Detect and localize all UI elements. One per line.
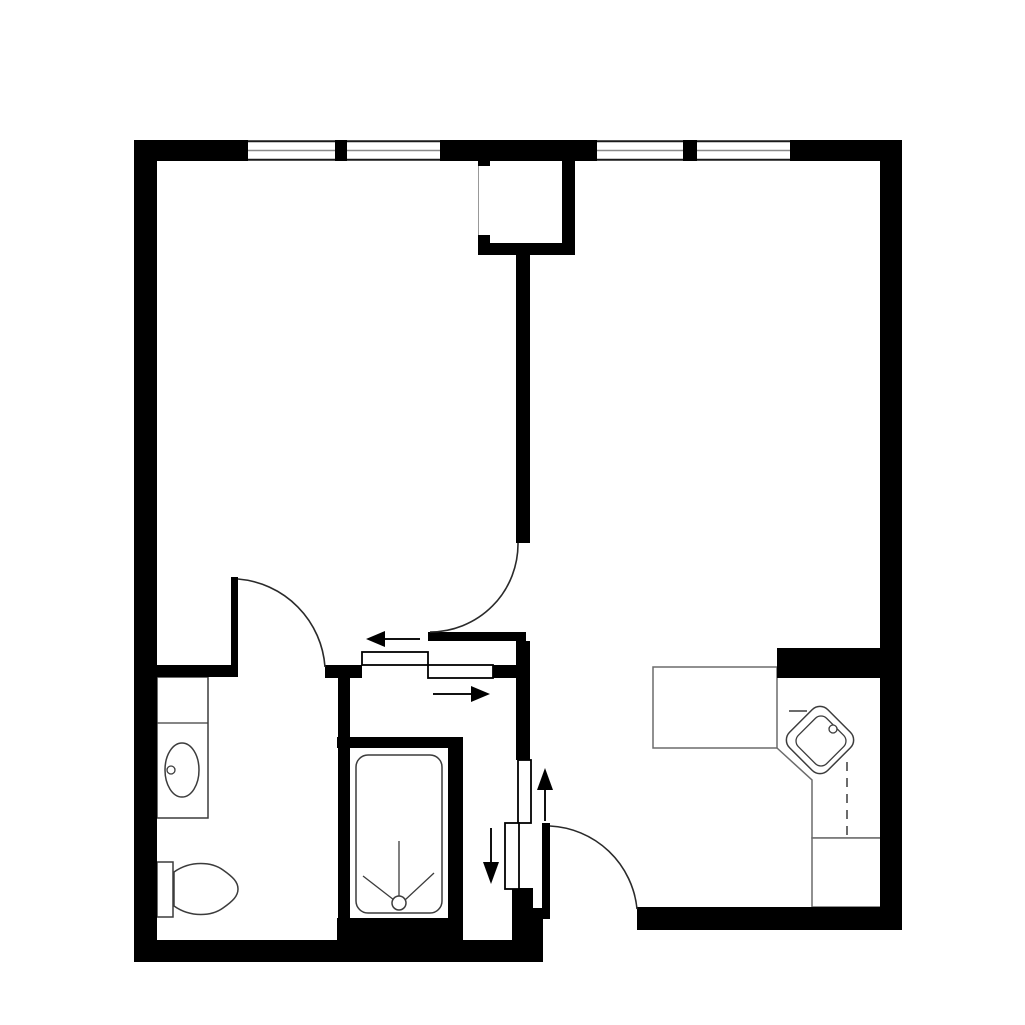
slide-door-right-wall [493,665,516,678]
slide-panel-lower [428,665,493,678]
floorplan-svg [0,0,1025,1025]
left-wall [134,140,157,962]
window-mullion-2 [683,140,697,161]
entry-step-wall-a [512,888,533,910]
window-mullion-1 [335,140,347,161]
kitchen-counter-top [653,667,777,748]
shower-bottom-wall [337,918,463,942]
toilet-bowl [174,864,238,915]
bath-top-wall [134,665,232,677]
top-wall-center [440,140,597,161]
shower-right-wall [448,748,463,923]
kitchen-wall-stub [777,648,882,678]
slide-arrow-left-head [366,631,385,647]
shower-left-wall [338,748,350,940]
entry-door-leaf [542,823,550,919]
slide-panel-vert-right [518,760,531,823]
slide-arrow-right-head [471,686,490,702]
slide-arrow-down-head [483,862,499,884]
room-divider-wall [516,255,530,543]
entry-door-swing-arc [550,826,637,909]
floor-plan-page [0,0,1025,1025]
kitchen-counter-bottom [812,838,882,907]
bottom-wall-right [637,907,902,930]
shower-drain [392,896,406,910]
bath-door-leaf [231,577,238,677]
bath-right-wall [338,677,350,739]
bath-door-jamb-wall [325,665,362,678]
shaft-notch-top [478,158,490,166]
toilet-tank [157,862,173,917]
slide-arrow-up-head [537,768,553,790]
shaft-notch-bottom [478,235,490,243]
bathroom-sink-drain [167,766,175,774]
right-wall [880,140,902,930]
hall-vertical-wall [516,641,530,760]
shower-top-wall [337,737,463,748]
slide-panel-vert-left [505,823,519,889]
slide-panel-upper [362,652,428,665]
shaft-bottom-wall [478,243,575,255]
entry-step-wall-b [512,908,543,942]
hall-top-wall [428,632,526,641]
bath-door-swing-arc [238,579,325,667]
shaft-right-wall [562,158,575,255]
kitchen-faucet [829,725,837,733]
bottom-wall-left [134,940,543,962]
center-door-swing-arc [430,543,518,632]
